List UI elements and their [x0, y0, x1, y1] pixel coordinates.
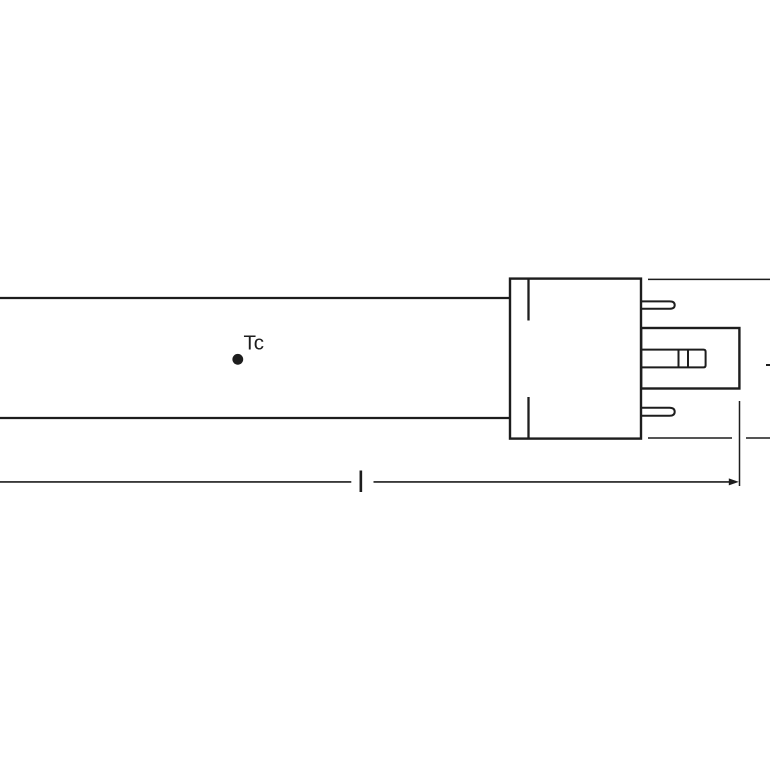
svg-text:l: l	[358, 466, 365, 499]
svg-text:Tc: Tc	[244, 331, 265, 354]
